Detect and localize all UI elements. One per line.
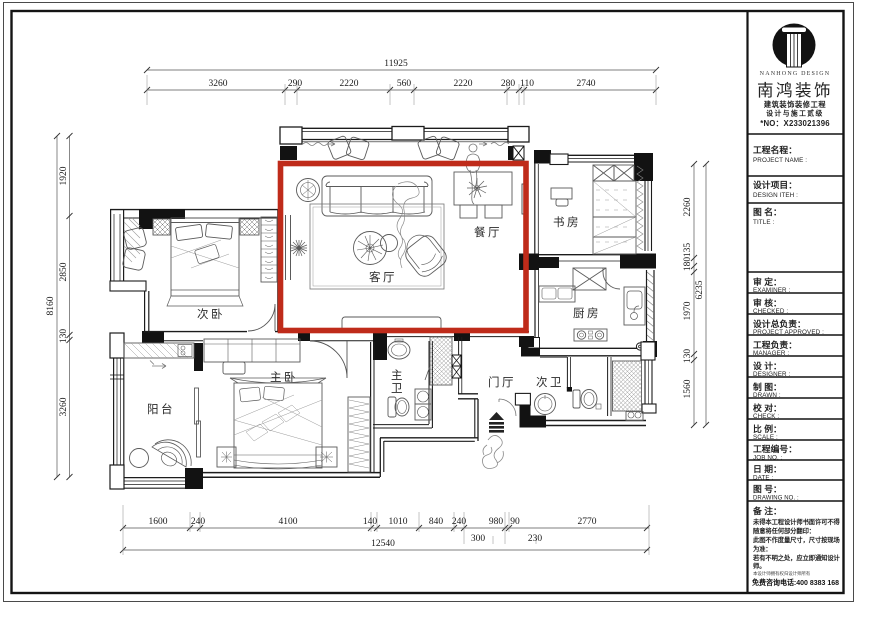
svg-text:校 对：: 校 对： — [753, 402, 782, 413]
svg-text:免费咨询电话:400 8383 168: 免费咨询电话:400 8383 168 — [752, 578, 839, 587]
svg-text:主: 主 — [391, 369, 403, 382]
svg-text:280: 280 — [501, 79, 516, 89]
svg-text:图 名：: 图 名： — [753, 206, 782, 217]
svg-text:审 核：: 审 核： — [753, 297, 782, 308]
svg-text:2220: 2220 — [340, 79, 359, 89]
svg-text:南鸿装饰: 南鸿装饰 — [757, 81, 833, 100]
svg-text:随意将任何部分翻印：: 随意将任何部分翻印： — [753, 526, 815, 535]
svg-text:次卫: 次卫 — [536, 375, 564, 389]
svg-text:DRAWING NO. :: DRAWING NO. : — [753, 496, 799, 502]
svg-text:TITLE :: TITLE : — [753, 219, 774, 226]
svg-text:240: 240 — [191, 517, 206, 527]
svg-text:阳台: 阳台 — [147, 402, 175, 416]
svg-text:设计总负责：: 设计总负责： — [753, 318, 806, 329]
svg-text:若有不明之处，应立即通知设计: 若有不明之处，应立即通知设计 — [753, 553, 841, 562]
svg-text:本设计师拥有权归设计师所有: 本设计师拥有权归设计师所有 — [753, 570, 811, 577]
svg-text:12540: 12540 — [371, 539, 395, 549]
svg-text:230: 230 — [528, 534, 543, 544]
svg-text:设计与施工贰级: 设计与施工贰级 — [766, 109, 823, 118]
svg-text:1010: 1010 — [389, 517, 408, 527]
svg-text:1970: 1970 — [683, 301, 693, 320]
svg-text:4100: 4100 — [279, 517, 298, 527]
svg-text:卫: 卫 — [391, 383, 403, 395]
svg-text:2220: 2220 — [454, 79, 473, 89]
svg-text:JOB NO. :: JOB NO. : — [753, 455, 783, 462]
svg-text:备 注：: 备 注： — [752, 505, 782, 516]
svg-text:制 图：: 制 图： — [753, 381, 782, 392]
svg-text:1920: 1920 — [59, 166, 69, 185]
svg-text:3260: 3260 — [209, 79, 228, 89]
svg-text:师。: 师。 — [753, 561, 765, 570]
svg-text:840: 840 — [429, 517, 444, 527]
svg-text:180: 180 — [683, 257, 693, 272]
svg-text:11925: 11925 — [384, 59, 408, 69]
svg-text:DESIGNER :: DESIGNER : — [753, 371, 791, 378]
svg-text:餐厅: 餐厅 — [474, 225, 502, 239]
svg-text:门厅: 门厅 — [488, 375, 516, 389]
svg-text:CHECKED :: CHECKED : — [753, 308, 788, 315]
svg-text:建筑装饰装修工程: 建筑装饰装修工程 — [764, 100, 827, 109]
svg-text:图 号：: 图 号： — [753, 484, 782, 494]
svg-text:1600: 1600 — [149, 517, 168, 527]
svg-text:次卧: 次卧 — [197, 307, 225, 321]
svg-text:290: 290 — [288, 79, 303, 89]
svg-text:110: 110 — [520, 79, 534, 89]
svg-text:2850: 2850 — [59, 262, 69, 281]
svg-text:980: 980 — [489, 517, 504, 527]
svg-text:1560: 1560 — [683, 379, 693, 398]
svg-text:厨房: 厨房 — [573, 307, 601, 320]
svg-text:未得本工程设计师书面许可不得: 未得本工程设计师书面许可不得 — [753, 517, 841, 526]
svg-text:DESIGN ITEH :: DESIGN ITEH : — [753, 192, 798, 199]
svg-text:SCALE :: SCALE : — [753, 434, 778, 441]
svg-text:审 定：: 审 定： — [753, 276, 782, 287]
svg-text:2740: 2740 — [577, 79, 596, 89]
svg-text:MANAGER :: MANAGER : — [753, 350, 789, 357]
svg-text:工程负责：: 工程负责： — [753, 339, 797, 350]
svg-text:比 例：: 比 例： — [753, 423, 782, 434]
svg-text:560: 560 — [397, 79, 412, 89]
svg-text:PROJECT NAME :: PROJECT NAME : — [753, 157, 807, 164]
svg-text:书房: 书房 — [553, 216, 581, 229]
svg-text:NANHONG DESIGN: NANHONG DESIGN — [760, 71, 831, 77]
svg-text:工程名程：: 工程名程： — [753, 144, 797, 155]
svg-text:DRAWN :: DRAWN : — [753, 392, 781, 399]
svg-text:主卧: 主卧 — [270, 371, 298, 384]
svg-text:8160: 8160 — [46, 296, 56, 315]
svg-text:DATE :: DATE : — [753, 475, 774, 482]
svg-text:日 期：: 日 期： — [753, 463, 782, 474]
svg-text:此图不作度量尺寸，尺寸按现场: 此图不作度量尺寸，尺寸按现场 — [753, 535, 841, 544]
svg-text:6235: 6235 — [695, 280, 705, 299]
svg-text:CHECK :: CHECK : — [753, 413, 779, 420]
svg-text:130: 130 — [59, 329, 69, 344]
svg-text:EXAMINER :: EXAMINER : — [753, 287, 791, 294]
svg-text:2260: 2260 — [683, 197, 693, 216]
svg-text:90: 90 — [510, 517, 520, 527]
svg-text:300: 300 — [471, 534, 486, 544]
svg-text:工程编号：: 工程编号： — [753, 443, 797, 454]
svg-text:2770: 2770 — [578, 517, 597, 527]
svg-text:为准：: 为准： — [753, 544, 772, 553]
svg-text:PROJECT APPROVED :: PROJECT APPROVED : — [753, 329, 824, 336]
svg-text:135: 135 — [683, 243, 693, 258]
svg-text:240: 240 — [452, 517, 467, 527]
svg-text:设计项目：: 设计项目： — [753, 179, 797, 190]
svg-text:140: 140 — [363, 517, 378, 527]
svg-text:*NO：X233021396: *NO：X233021396 — [760, 119, 830, 128]
svg-text:3260: 3260 — [59, 397, 69, 416]
svg-text:设 计：: 设 计： — [753, 360, 782, 371]
svg-text:客厅: 客厅 — [369, 270, 397, 284]
svg-text:130: 130 — [683, 349, 693, 364]
